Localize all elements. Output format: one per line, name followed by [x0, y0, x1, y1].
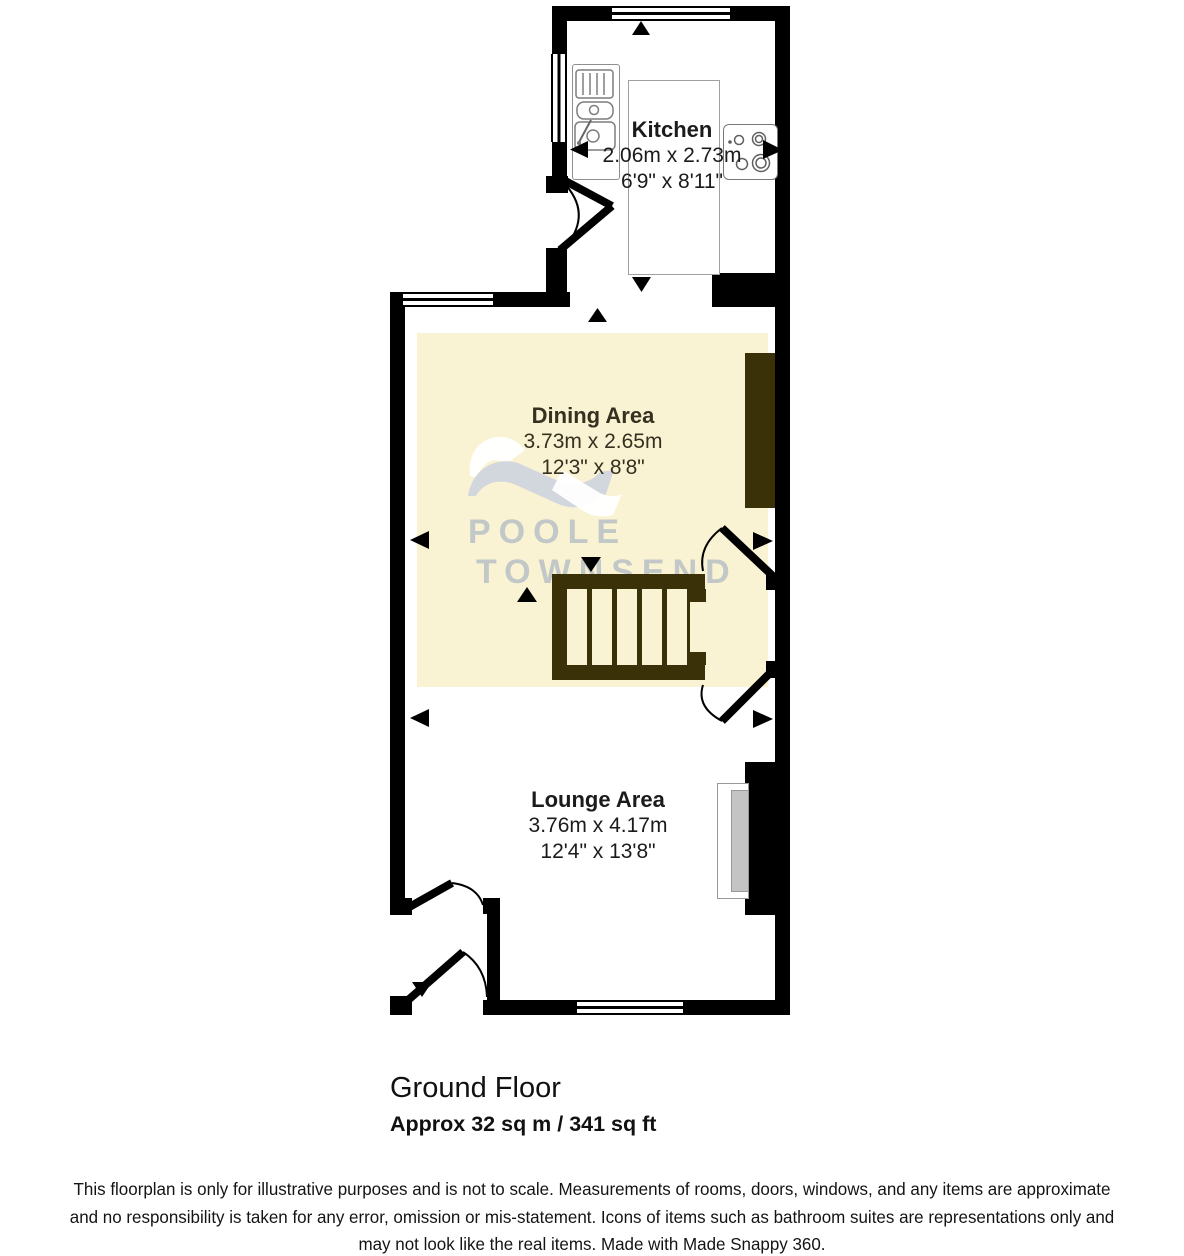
- kitchen-imperial: 6'9" x 8'11": [552, 169, 792, 195]
- floorplan-canvas: POOLE TOWNSEND: [0, 0, 1184, 1256]
- dining-name: Dining Area: [473, 402, 713, 429]
- disclaimer-line: and no responsibility is taken for any e…: [18, 1204, 1166, 1232]
- disclaimer-line: This floorplan is only for illustrative …: [18, 1176, 1166, 1204]
- room-label-dining: Dining Area 3.73m x 2.65m 12'3" x 8'8": [473, 402, 713, 481]
- dining-imperial: 12'3" x 8'8": [473, 455, 713, 481]
- room-label-lounge: Lounge Area 3.76m x 4.17m 12'4" x 13'8": [478, 786, 718, 865]
- disclaimer-line: may not look like the real items. Made w…: [18, 1231, 1166, 1256]
- area-label: Approx 32 sq m / 341 sq ft: [390, 1112, 656, 1137]
- lounge-name: Lounge Area: [478, 786, 718, 813]
- dining-metric: 3.73m x 2.65m: [473, 429, 713, 455]
- door-swing-icon: [407, 952, 487, 1001]
- door-swing-icon: [702, 528, 776, 579]
- room-label-kitchen: Kitchen 2.06m x 2.73m 6'9" x 8'11": [552, 116, 792, 195]
- floor-label: Ground Floor: [390, 1072, 561, 1105]
- lounge-imperial: 12'4" x 13'8": [478, 839, 718, 865]
- door-swing-icon: [702, 667, 776, 721]
- lounge-metric: 3.76m x 4.17m: [478, 813, 718, 839]
- disclaimer: This floorplan is only for illustrative …: [18, 1176, 1166, 1256]
- kitchen-metric: 2.06m x 2.73m: [552, 143, 792, 169]
- kitchen-name: Kitchen: [552, 116, 792, 143]
- door-swing-icon: [404, 883, 483, 910]
